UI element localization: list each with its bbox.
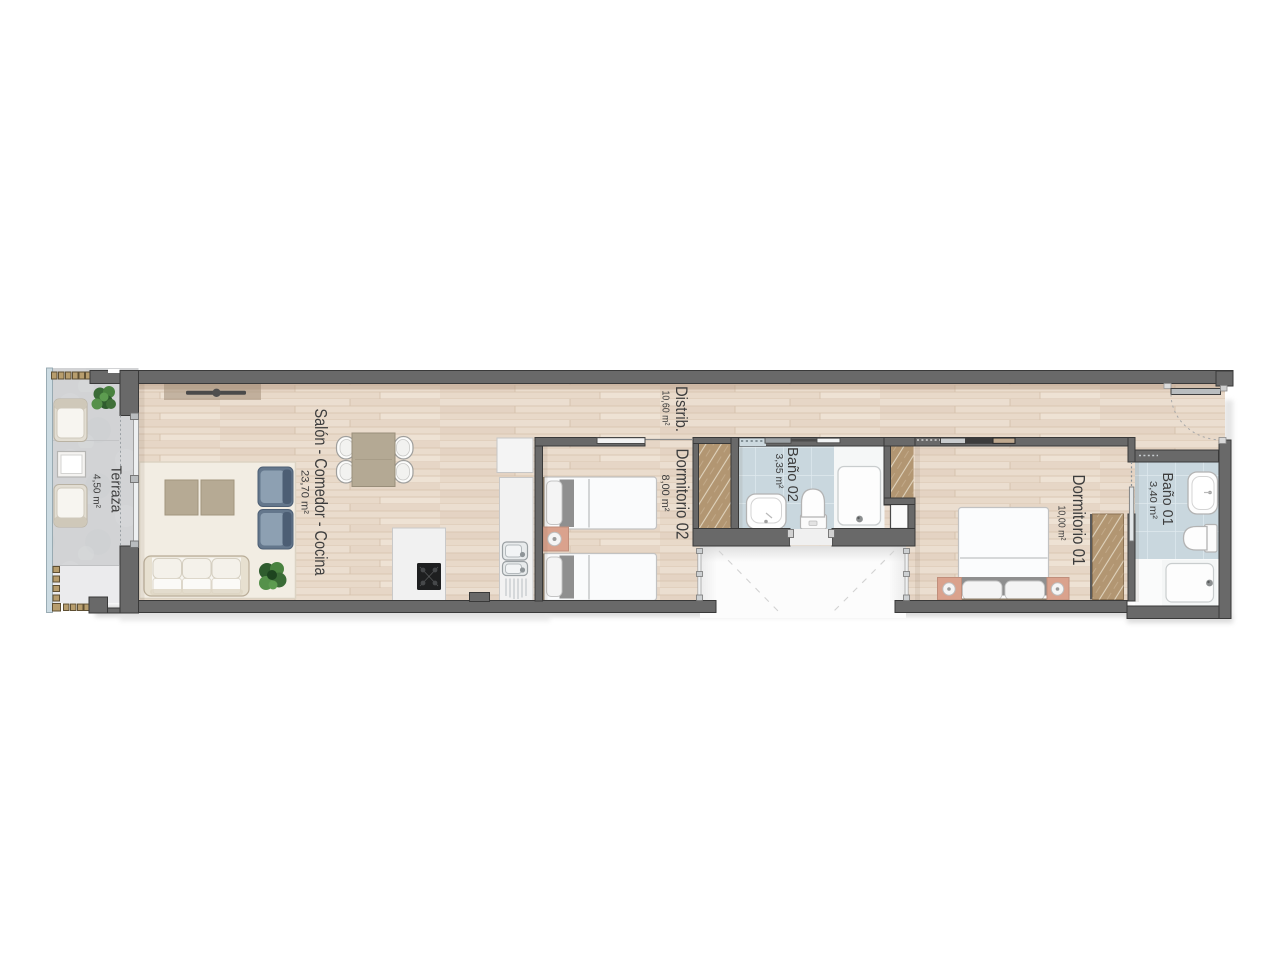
svg-text:Dormitorio 02: Dormitorio 02 bbox=[673, 449, 693, 540]
svg-text:3,35 m²: 3,35 m² bbox=[773, 454, 784, 490]
svg-text:4,50 m²: 4,50 m² bbox=[91, 474, 103, 508]
svg-text:Distrib.: Distrib. bbox=[672, 386, 690, 432]
svg-text:8,00 m²: 8,00 m² bbox=[659, 475, 671, 512]
svg-text:23,70 m²: 23,70 m² bbox=[299, 470, 311, 514]
svg-text:Dormitorio 01: Dormitorio 01 bbox=[1069, 475, 1089, 566]
svg-text:10,60 m²: 10,60 m² bbox=[660, 391, 672, 426]
svg-text:Terraza: Terraza bbox=[108, 466, 125, 514]
svg-text:Baño 01: Baño 01 bbox=[1159, 473, 1176, 526]
svg-text:10,00 m²: 10,00 m² bbox=[1056, 506, 1068, 541]
svg-text:3,40 m²: 3,40 m² bbox=[1147, 481, 1159, 520]
svg-text:Salón - Comedor - Cocina: Salón - Comedor - Cocina bbox=[311, 409, 331, 576]
svg-text:Baño 02: Baño 02 bbox=[784, 447, 800, 502]
